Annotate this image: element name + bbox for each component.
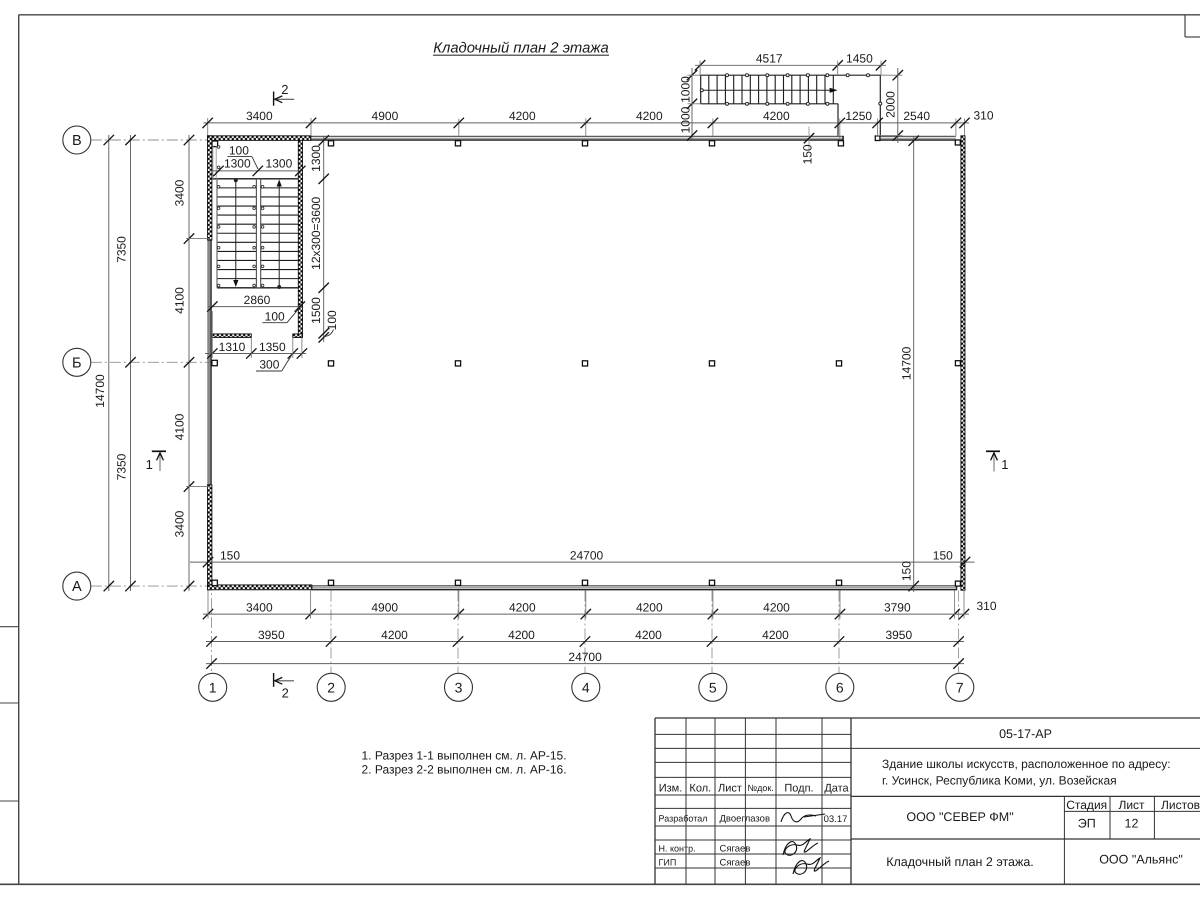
svg-text:ООО "СЕВЕР ФМ": ООО "СЕВЕР ФМ" bbox=[906, 810, 1013, 824]
svg-text:Изм.: Изм. bbox=[659, 782, 683, 794]
svg-text:Кладочный план 2 этажа.: Кладочный план 2 этажа. bbox=[886, 855, 1034, 869]
svg-text:4200: 4200 bbox=[509, 600, 536, 614]
svg-text:1310: 1310 bbox=[219, 340, 246, 354]
svg-text:Дата: Дата bbox=[824, 782, 849, 794]
svg-text:4517: 4517 bbox=[756, 52, 783, 66]
svg-text:Лист: Лист bbox=[1118, 798, 1145, 812]
svg-text:4200: 4200 bbox=[762, 628, 789, 642]
svg-text:03.17: 03.17 bbox=[824, 814, 848, 825]
svg-text:24700: 24700 bbox=[568, 650, 602, 664]
svg-text:1. Разрез 1-1 выполнен см. л.: 1. Разрез 1-1 выполнен см. л. АР-15. bbox=[362, 749, 567, 763]
svg-text:Здание школы искусств, располо: Здание школы искусств, расположенное по … bbox=[882, 757, 1171, 771]
svg-text:5: 5 bbox=[709, 679, 717, 695]
svg-text:2. Разрез 2-2 выполнен см. л.: 2. Разрез 2-2 выполнен см. л. АР-16. bbox=[362, 763, 567, 777]
svg-text:1: 1 bbox=[146, 457, 153, 472]
svg-text:1000: 1000 bbox=[678, 76, 692, 103]
svg-text:Сягаев: Сягаев bbox=[720, 857, 751, 868]
svg-text:2: 2 bbox=[327, 679, 335, 695]
svg-text:ООО "Альянс": ООО "Альянс" bbox=[1099, 853, 1183, 867]
svg-text:3400: 3400 bbox=[246, 600, 273, 614]
svg-text:Разработал: Разработал bbox=[659, 814, 708, 824]
svg-text:4900: 4900 bbox=[371, 600, 398, 614]
svg-text:1300: 1300 bbox=[224, 156, 251, 170]
svg-text:4200: 4200 bbox=[381, 628, 408, 642]
svg-text:ГИП: ГИП bbox=[659, 857, 677, 867]
svg-text:150: 150 bbox=[899, 561, 913, 581]
svg-text:150: 150 bbox=[220, 548, 240, 562]
svg-text:Сягаев: Сягаев bbox=[720, 843, 751, 854]
svg-text:3400: 3400 bbox=[173, 179, 187, 206]
svg-text:4200: 4200 bbox=[635, 628, 662, 642]
svg-text:4100: 4100 bbox=[173, 287, 187, 314]
svg-text:150: 150 bbox=[933, 548, 953, 562]
svg-text:3950: 3950 bbox=[258, 628, 285, 642]
svg-text:В: В bbox=[72, 133, 82, 149]
svg-text:05-17-АР: 05-17-АР bbox=[999, 727, 1052, 741]
svg-text:4200: 4200 bbox=[509, 109, 536, 123]
svg-text:2860: 2860 bbox=[244, 293, 271, 307]
svg-text:Кладочный план 2 этажа: Кладочный план 2 этажа bbox=[433, 40, 608, 56]
svg-text:14700: 14700 bbox=[93, 374, 107, 408]
svg-text:4200: 4200 bbox=[636, 109, 663, 123]
svg-text:3950: 3950 bbox=[885, 628, 912, 642]
svg-text:3400: 3400 bbox=[246, 109, 273, 123]
svg-text:А: А bbox=[72, 579, 82, 595]
svg-text:300: 300 bbox=[259, 357, 279, 371]
svg-text:Листов: Листов bbox=[1161, 798, 1200, 812]
svg-text:3400: 3400 bbox=[173, 510, 187, 537]
svg-text:100: 100 bbox=[265, 309, 285, 323]
svg-text:1500: 1500 bbox=[309, 297, 323, 324]
svg-text:4200: 4200 bbox=[508, 628, 535, 642]
svg-text:310: 310 bbox=[974, 109, 994, 123]
svg-text:150: 150 bbox=[800, 144, 814, 164]
svg-text:4: 4 bbox=[582, 679, 590, 695]
svg-text:1000: 1000 bbox=[678, 106, 692, 133]
svg-text:Подп.: Подп. bbox=[784, 782, 813, 794]
svg-text:7350: 7350 bbox=[115, 453, 129, 480]
svg-text:Б: Б bbox=[72, 355, 82, 371]
svg-text:Стадия: Стадия bbox=[1066, 798, 1107, 812]
svg-text:14700: 14700 bbox=[899, 346, 913, 380]
svg-text:310: 310 bbox=[977, 599, 997, 613]
svg-text:12: 12 bbox=[1125, 817, 1139, 831]
svg-text:1: 1 bbox=[209, 679, 217, 695]
svg-text:4900: 4900 bbox=[372, 109, 399, 123]
svg-text:2000: 2000 bbox=[884, 91, 898, 118]
svg-text:1450: 1450 bbox=[846, 52, 873, 66]
svg-text:3790: 3790 bbox=[884, 600, 911, 614]
svg-text:100: 100 bbox=[229, 143, 249, 157]
svg-text:Н. контр.: Н. контр. bbox=[659, 843, 696, 853]
svg-text:2: 2 bbox=[281, 82, 288, 97]
svg-text:12х300=3600: 12х300=3600 bbox=[309, 196, 323, 269]
svg-text:1: 1 bbox=[1001, 457, 1008, 472]
svg-text:24700: 24700 bbox=[570, 548, 604, 562]
svg-text:№док.: №док. bbox=[748, 783, 774, 793]
svg-text:1300: 1300 bbox=[266, 156, 293, 170]
svg-text:4200: 4200 bbox=[636, 600, 663, 614]
svg-text:2540: 2540 bbox=[903, 109, 930, 123]
svg-text:6: 6 bbox=[836, 679, 844, 695]
svg-text:2: 2 bbox=[282, 685, 289, 700]
svg-text:1250: 1250 bbox=[845, 109, 872, 123]
svg-text:г. Усинск, Республика Коми, ул: г. Усинск, Республика Коми, ул. Возейска… bbox=[882, 774, 1117, 788]
svg-text:7350: 7350 bbox=[115, 236, 129, 263]
svg-text:4200: 4200 bbox=[763, 600, 790, 614]
svg-text:Двоеглазов: Двоеглазов bbox=[720, 814, 771, 825]
svg-text:Кол.: Кол. bbox=[689, 782, 711, 794]
svg-text:100: 100 bbox=[325, 310, 339, 330]
svg-text:Лист: Лист bbox=[718, 782, 742, 794]
svg-text:3: 3 bbox=[455, 679, 463, 695]
svg-text:7: 7 bbox=[956, 679, 964, 695]
svg-text:1350: 1350 bbox=[259, 340, 286, 354]
svg-text:4100: 4100 bbox=[173, 413, 187, 440]
svg-text:ЭП: ЭП bbox=[1078, 817, 1096, 831]
svg-text:1300: 1300 bbox=[309, 145, 323, 172]
svg-text:4200: 4200 bbox=[763, 109, 790, 123]
